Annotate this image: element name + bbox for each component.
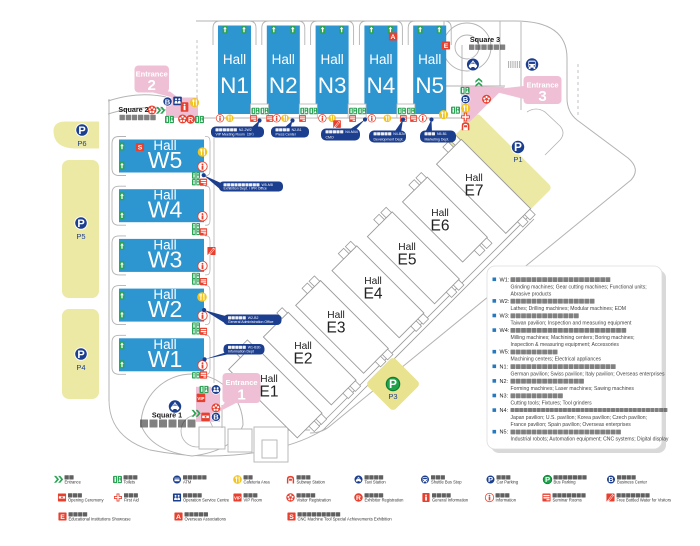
- svg-text:Taiwan pavilion; Inspection an: Taiwan pavilion; Inspection and measurin…: [511, 321, 632, 327]
- svg-text:Forming machines; Laser machin: Forming machines; Laser machines; Sawing…: [511, 386, 635, 392]
- svg-text:Hall: Hall: [369, 52, 392, 67]
- svg-text:Grinding machines; Gear cuttin: Grinding machines; Gear cutting machines…: [511, 284, 647, 290]
- svg-text:E4: E4: [364, 286, 383, 303]
- svg-text:Square 3: Square 3: [470, 35, 500, 44]
- svg-text:VIP Meeting Room（2F）: VIP Meeting Room（2F）: [216, 132, 256, 137]
- svg-text:Educational Institutions Showc: Educational Institutions Showcase: [69, 517, 132, 522]
- svg-text:E6: E6: [431, 218, 450, 235]
- svg-text:P5: P5: [76, 232, 85, 241]
- svg-text:Shuttle Bus Stop: Shuttle Bus Stop: [431, 480, 462, 485]
- svg-text:General Administration Office: General Administration Office: [228, 320, 274, 324]
- svg-text:N3:: N3:: [500, 394, 509, 400]
- svg-text:N4:: N4:: [500, 408, 509, 414]
- svg-text:Visitor Registration: Visitor Registration: [297, 498, 332, 503]
- svg-text:Square 1: Square 1: [152, 411, 182, 420]
- svg-text:W1:: W1:: [500, 277, 510, 283]
- svg-text:First Aid: First Aid: [124, 498, 140, 503]
- svg-text:W5:: W5:: [500, 350, 510, 356]
- svg-text:E1: E1: [260, 384, 279, 401]
- svg-text:W1: W1: [148, 346, 183, 372]
- svg-text:Japan pavilion; U.S. pavilion;: Japan pavilion; U.S. pavilion; Korea pav…: [511, 415, 647, 421]
- svg-text:W3: W3: [148, 246, 183, 272]
- svg-text:3: 3: [538, 88, 546, 105]
- svg-text:Entrance: Entrance: [65, 480, 82, 485]
- svg-text:Cafeteria Area: Cafeteria Area: [244, 480, 271, 485]
- svg-text:Square 2: Square 2: [118, 105, 148, 114]
- svg-text:Seminar Rooms: Seminar Rooms: [553, 498, 582, 503]
- svg-text:N4-M44: N4-M44: [345, 130, 358, 134]
- svg-text:Information Dept: Information Dept: [228, 350, 254, 354]
- svg-text:Exhibition Dept. / IPR Office: Exhibition Dept. / IPR Office: [224, 187, 267, 191]
- svg-text:N5-B1: N5-B1: [437, 132, 447, 136]
- svg-text:N1: N1: [220, 73, 249, 98]
- svg-text:Bus Parking: Bus Parking: [554, 480, 577, 485]
- svg-text:N1:: N1:: [500, 364, 509, 370]
- svg-text:W4:: W4:: [500, 328, 510, 334]
- svg-text:W2:: W2:: [500, 299, 510, 305]
- svg-text:E7: E7: [465, 183, 484, 200]
- svg-text:General Information: General Information: [432, 498, 469, 503]
- svg-text:E3: E3: [327, 320, 346, 337]
- svg-text:ATM: ATM: [183, 480, 192, 485]
- svg-text:N3: N3: [318, 73, 347, 98]
- svg-text:Toilets: Toilets: [124, 480, 136, 485]
- svg-text:Lathes; Drilling machines; Mod: Lathes; Drilling machines; Modular machi…: [511, 306, 627, 312]
- svg-text:Marketing Dept.: Marketing Dept.: [425, 138, 450, 142]
- svg-text:CMO: CMO: [326, 136, 334, 140]
- svg-text:Milling machines; Machining ce: Milling machines; Machining centers; Bor…: [511, 335, 635, 341]
- svg-text:N5:: N5:: [500, 430, 509, 436]
- svg-text:Hall: Hall: [223, 52, 246, 67]
- svg-text:1: 1: [237, 387, 245, 404]
- svg-text:Hall: Hall: [320, 52, 343, 67]
- svg-text:N2-B1: N2-B1: [292, 128, 302, 132]
- svg-text:N5: N5: [415, 73, 444, 98]
- svg-text:W2: W2: [148, 296, 183, 322]
- svg-text:Taxi Station: Taxi Station: [365, 480, 387, 485]
- svg-text:W3:: W3:: [500, 314, 510, 320]
- svg-text:Inspection & measuring equipme: Inspection & measuring equipment; Access…: [511, 342, 620, 348]
- svg-text:Business Center: Business Center: [617, 480, 648, 485]
- svg-text:E2: E2: [294, 351, 313, 368]
- svg-text:Industrial robots; Automation: Industrial robots; Automation equipment;…: [511, 437, 669, 443]
- svg-text:Hall: Hall: [272, 52, 295, 67]
- svg-text:W4: W4: [148, 197, 183, 223]
- svg-text:W5: W5: [148, 147, 183, 173]
- svg-text:France pavilion; Spain pavilio: France pavilion; Spain pavilion; Oversea…: [511, 422, 632, 428]
- svg-text:Development Dept.: Development Dept.: [374, 138, 404, 142]
- svg-text:VIP Room: VIP Room: [244, 498, 263, 503]
- svg-text:P4: P4: [76, 363, 85, 372]
- svg-text:Exhibitor Registration: Exhibitor Registration: [365, 498, 405, 503]
- svg-text:N2-2W2: N2-2W2: [239, 128, 252, 132]
- svg-text:2: 2: [148, 77, 156, 94]
- svg-text:Hall: Hall: [418, 52, 441, 67]
- svg-text:Car Parking: Car Parking: [497, 480, 519, 485]
- svg-text:German pavilion; Swiss pavilio: German pavilion; Swiss pavilion; Italy p…: [511, 371, 665, 377]
- svg-text:Abrasive products: Abrasive products: [511, 291, 552, 297]
- svg-text:N4-B2c: N4-B2c: [393, 132, 405, 136]
- svg-text:N2:: N2:: [500, 379, 509, 385]
- svg-text:Press Center: Press Center: [276, 133, 297, 137]
- svg-text:Overseas Associations: Overseas Associations: [185, 517, 226, 522]
- svg-text:N2: N2: [269, 73, 298, 98]
- svg-text:Information: Information: [496, 498, 517, 503]
- svg-text:Free Bottled Water for Visitor: Free Bottled Water for Visitors: [617, 498, 672, 503]
- svg-text:P1: P1: [513, 155, 522, 164]
- svg-text:Cutting tools; Fixtures; Tool: Cutting tools; Fixtures; Tool grinders: [511, 401, 593, 407]
- svg-text:N4: N4: [367, 73, 396, 98]
- svg-text:E5: E5: [398, 252, 417, 269]
- svg-text:CNC Machine Tool Special Achie: CNC Machine Tool Special Achievements Ex…: [298, 517, 393, 522]
- svg-text:P3: P3: [388, 392, 397, 401]
- svg-text:Subway Station: Subway Station: [297, 480, 326, 485]
- svg-text:Operation Service Centre: Operation Service Centre: [183, 498, 230, 503]
- svg-text:Opening Ceremony: Opening Ceremony: [68, 498, 104, 503]
- svg-text:Machining centers; Electrical: Machining centers; Electrical appliances: [511, 357, 602, 363]
- svg-text:P6: P6: [77, 139, 86, 148]
